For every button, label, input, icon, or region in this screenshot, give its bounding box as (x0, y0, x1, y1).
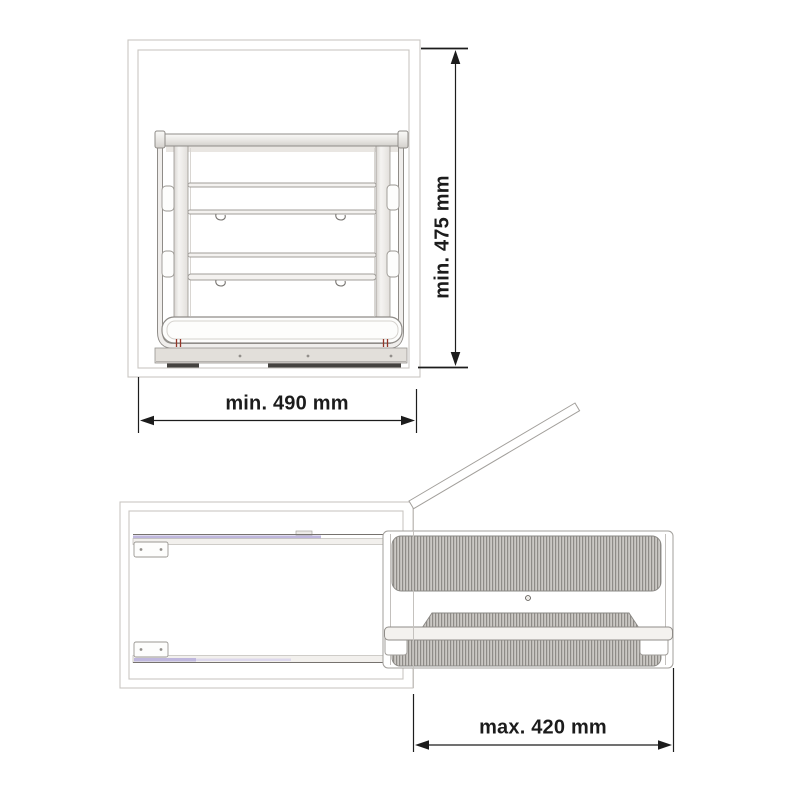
height-dim-arrow-up (451, 50, 461, 64)
ext-dim-arrow-left (415, 740, 429, 750)
drawing-svg (0, 0, 800, 800)
extension-dimension-label: max. 420 mm (479, 717, 607, 740)
pullout-rack-plan (383, 531, 673, 668)
side-clip-left-lower (162, 251, 174, 277)
side-clip-right-upper (387, 185, 399, 210)
rail-mounting-bracket (134, 642, 168, 657)
shelf-wire-3 (188, 253, 376, 257)
top-bar-cap-right (398, 131, 408, 148)
shelf-hook (336, 280, 345, 286)
cross-bar (385, 627, 673, 640)
shelf-hook (216, 214, 225, 220)
rack-post-right (376, 146, 390, 322)
technical-drawing-canvas: min. 475 mm min. 490 mm max. 420 mm (0, 0, 800, 800)
ext-dim-arrow-right (658, 740, 672, 750)
front-wire-shelf (392, 536, 661, 591)
height-dimension-label: min. 475 mm (432, 175, 455, 298)
pullout-rack-front (155, 131, 408, 368)
side-clip-left-upper (162, 186, 174, 211)
top-bar-cap-left (155, 131, 165, 148)
rail-mounting-bracket (134, 542, 168, 557)
rack-top-bar (163, 134, 401, 146)
base-screw (390, 355, 393, 358)
rack-frame-tube-outline (160, 147, 401, 346)
rail-accent-strip (133, 536, 321, 539)
open-door-panel (409, 403, 580, 509)
runner-foot (167, 364, 199, 368)
fixing-hole (526, 596, 531, 601)
plan-view (120, 403, 674, 752)
shelf-wire-4 (188, 274, 376, 280)
rear-wire-shelf (392, 640, 661, 666)
bracket-screw (160, 548, 163, 551)
base-plate (155, 348, 407, 363)
rack-post-left (174, 146, 188, 322)
slide-rail-top (133, 531, 386, 557)
shelf-wire-1 (188, 183, 376, 187)
front-view (128, 40, 468, 433)
width-dimension-label: min. 490 mm (225, 393, 348, 416)
shelf-hook (336, 214, 345, 220)
side-clip-right-lower (387, 251, 399, 277)
shelf-wire-2 (188, 210, 376, 214)
slide-rail-bottom (133, 642, 386, 663)
width-dim-arrow-left (140, 416, 154, 426)
bracket-screw (160, 648, 163, 651)
bracket-screw (140, 548, 143, 551)
base-screw (307, 355, 310, 358)
top-bar-shadow (166, 146, 398, 152)
shelf-hook (216, 280, 225, 286)
height-dim-arrow-down (451, 352, 461, 366)
width-dim-arrow-right (401, 416, 415, 426)
base-screw (239, 355, 242, 358)
rail-accent-strip-light (196, 659, 291, 662)
rack-frame-tube-fill (160, 147, 401, 346)
runner-foot (268, 364, 401, 368)
rail-accent-strip (134, 658, 196, 662)
rail-body (133, 539, 386, 545)
bracket-screw (140, 648, 143, 651)
